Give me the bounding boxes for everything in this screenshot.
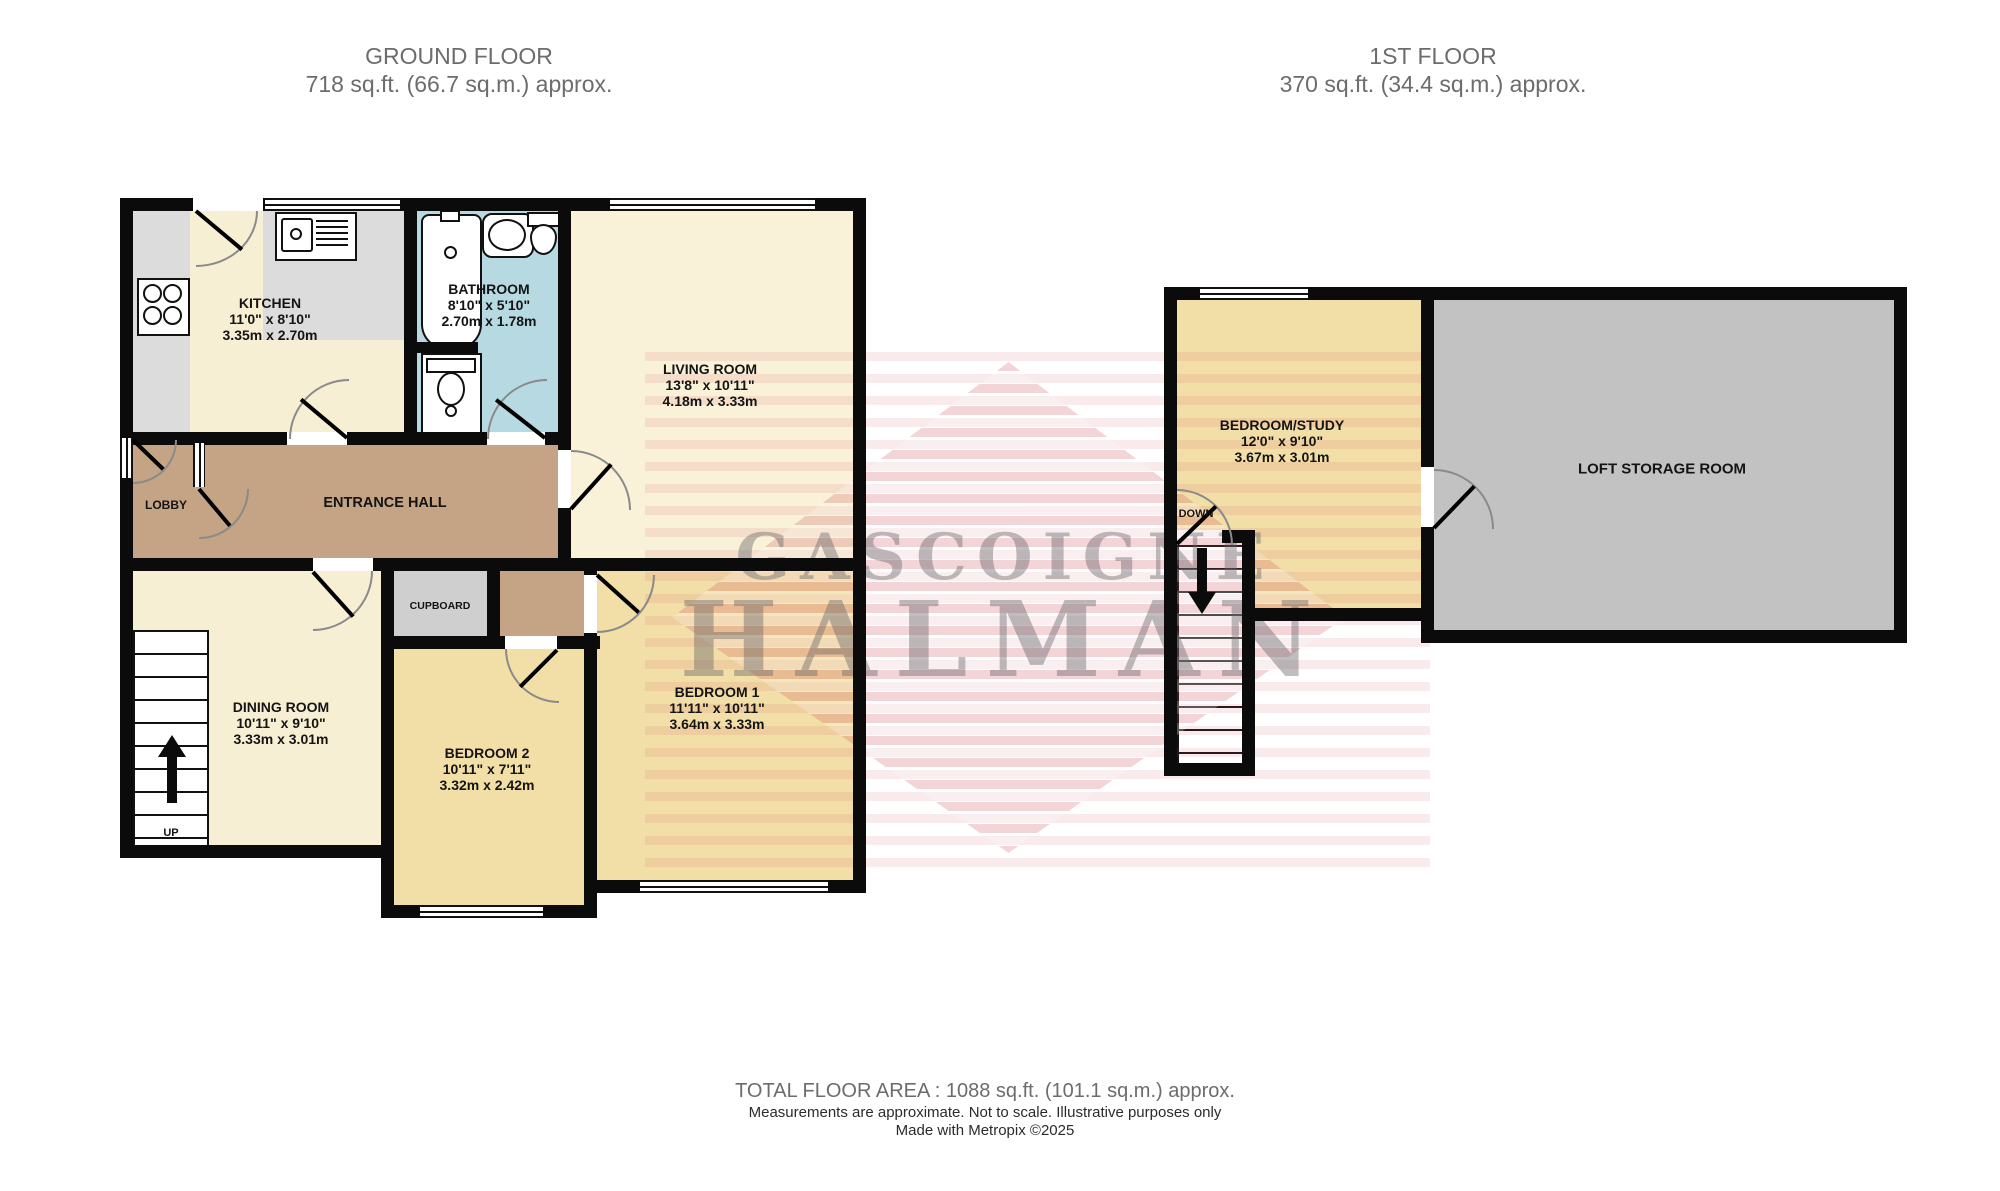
down-arrow-icon	[1188, 592, 1216, 614]
cupboard-label: CUPBOARD	[410, 600, 471, 612]
bedroom-study-metric: 3.67m x 3.01m	[1220, 449, 1344, 465]
bathroom-imperial: 8'10" x 5'10"	[442, 297, 537, 313]
wall	[120, 198, 133, 858]
living-room-label: LIVING ROOM 13'8" x 10'11" 4.18m x 3.33m	[663, 361, 758, 409]
wall	[1242, 608, 1434, 621]
dining-imperial: 10'11" x 9'10"	[233, 715, 329, 731]
ground-floor-name: GROUND FLOOR	[159, 42, 759, 70]
wc-bowl	[437, 372, 465, 406]
basin-bowl	[488, 219, 526, 251]
door-opening	[558, 450, 571, 508]
wall	[1164, 287, 1177, 776]
window	[610, 198, 815, 211]
wall	[120, 558, 866, 571]
kitchen-imperial: 11'0" x 8'10"	[223, 311, 318, 327]
bedroom2-name: BEDROOM 2	[440, 745, 535, 761]
wall	[120, 845, 394, 858]
hob-burner	[143, 284, 162, 303]
door-opening	[584, 575, 597, 633]
wall	[381, 571, 394, 918]
lobby-label: LOBBY	[145, 498, 187, 512]
bath-tap	[440, 210, 460, 222]
door-opening	[313, 558, 373, 571]
total-floor-area: TOTAL FLOOR AREA : 1088 sq.ft. (101.1 sq…	[385, 1078, 1585, 1104]
hob-burner	[143, 306, 162, 325]
up-label: UP	[163, 827, 178, 839]
wall	[1421, 287, 1434, 643]
bedroom2-label: BEDROOM 2 10'11" x 7'11" 3.32m x 2.42m	[440, 745, 535, 793]
footer: TOTAL FLOOR AREA : 1088 sq.ft. (101.1 sq…	[385, 1078, 1585, 1140]
bathroom-name: BATHROOM	[442, 281, 537, 297]
wall	[1242, 530, 1255, 776]
loft-storage-label: LOFT STORAGE ROOM	[1578, 461, 1746, 478]
window	[265, 198, 400, 211]
living-imperial: 13'8" x 10'11"	[663, 377, 758, 393]
wc-cistern	[426, 358, 476, 373]
bedroom2-metric: 3.32m x 2.42m	[440, 777, 535, 793]
wall	[1164, 763, 1255, 776]
staircase-down	[1177, 545, 1246, 767]
dining-name: DINING ROOM	[233, 699, 329, 715]
living-metric: 4.18m x 3.33m	[663, 393, 758, 409]
kitchen-label: KITCHEN 11'0" x 8'10" 3.35m x 2.70m	[223, 295, 318, 343]
hob-burner	[163, 284, 182, 303]
bedroom1-name: BEDROOM 1	[669, 684, 764, 700]
lobby-screen-window	[193, 443, 205, 487]
first-floor-name: 1ST FLOOR	[1133, 42, 1733, 70]
wall	[853, 198, 866, 893]
living-name: LIVING ROOM	[663, 361, 758, 377]
bedroom-study-name: BEDROOM/STUDY	[1220, 417, 1344, 433]
dining-metric: 3.33m x 3.01m	[233, 731, 329, 747]
bedroom1-metric: 3.64m x 3.33m	[669, 716, 764, 732]
wc-drain	[445, 405, 457, 417]
up-arrow-icon	[158, 735, 186, 757]
floorplan-canvas: GROUND FLOOR 718 sq.ft. (66.7 sq.m.) app…	[0, 0, 2000, 1191]
up-arrow-shaft	[167, 757, 177, 803]
window	[420, 905, 543, 918]
wall	[417, 342, 478, 353]
bathroom-metric: 2.70m x 1.78m	[442, 313, 537, 329]
bathroom-label: BATHROOM 8'10" x 5'10" 2.70m x 1.78m	[442, 281, 537, 329]
first-floor-area: 370 sq.ft. (34.4 sq.m.) approx.	[1133, 70, 1733, 98]
bedroom2-imperial: 10'11" x 7'11"	[440, 761, 535, 777]
ground-floor-area: 718 sq.ft. (66.7 sq.m.) approx.	[159, 70, 759, 98]
down-arrow-shaft	[1197, 548, 1207, 592]
kitchen-metric: 3.35m x 2.70m	[223, 327, 318, 343]
sink-drainer	[316, 220, 348, 249]
metropix-credit: Made with Metropix ©2025	[385, 1122, 1585, 1140]
ground-floor-title: GROUND FLOOR 718 sq.ft. (66.7 sq.m.) app…	[159, 42, 759, 98]
door-opening	[193, 198, 263, 211]
wall	[404, 198, 417, 445]
door-opening	[1421, 467, 1434, 527]
bath-plug	[444, 246, 457, 259]
entrance-hall-label: ENTRANCE HALL	[323, 495, 446, 511]
disclaimer-text: Measurements are approximate. Not to sca…	[385, 1104, 1585, 1122]
wall	[558, 198, 571, 571]
bedroom-study-label: BEDROOM/STUDY 12'0" x 9'10" 3.67m x 3.01…	[1220, 417, 1344, 465]
bedroom1-imperial: 11'11" x 10'11"	[669, 700, 764, 716]
wall	[1894, 287, 1907, 643]
kitchen-name: KITCHEN	[223, 295, 318, 311]
dining-room-label: DINING ROOM 10'11" x 9'10" 3.33m x 3.01m	[233, 699, 329, 747]
door-opening	[505, 636, 557, 649]
sink-drain	[290, 228, 302, 240]
down-label: DOWN	[1179, 508, 1214, 520]
bedroom-study-imperial: 12'0" x 9'10"	[1220, 433, 1344, 449]
front-door-window	[120, 438, 133, 478]
wall	[1421, 630, 1907, 643]
wall	[381, 636, 600, 649]
hob-burner	[163, 306, 182, 325]
bedroom1-label: BEDROOM 1 11'11" x 10'11" 3.64m x 3.33m	[669, 684, 764, 732]
first-floor-title: 1ST FLOOR 370 sq.ft. (34.4 sq.m.) approx…	[1133, 42, 1733, 98]
window	[1200, 287, 1308, 300]
window	[640, 880, 828, 893]
